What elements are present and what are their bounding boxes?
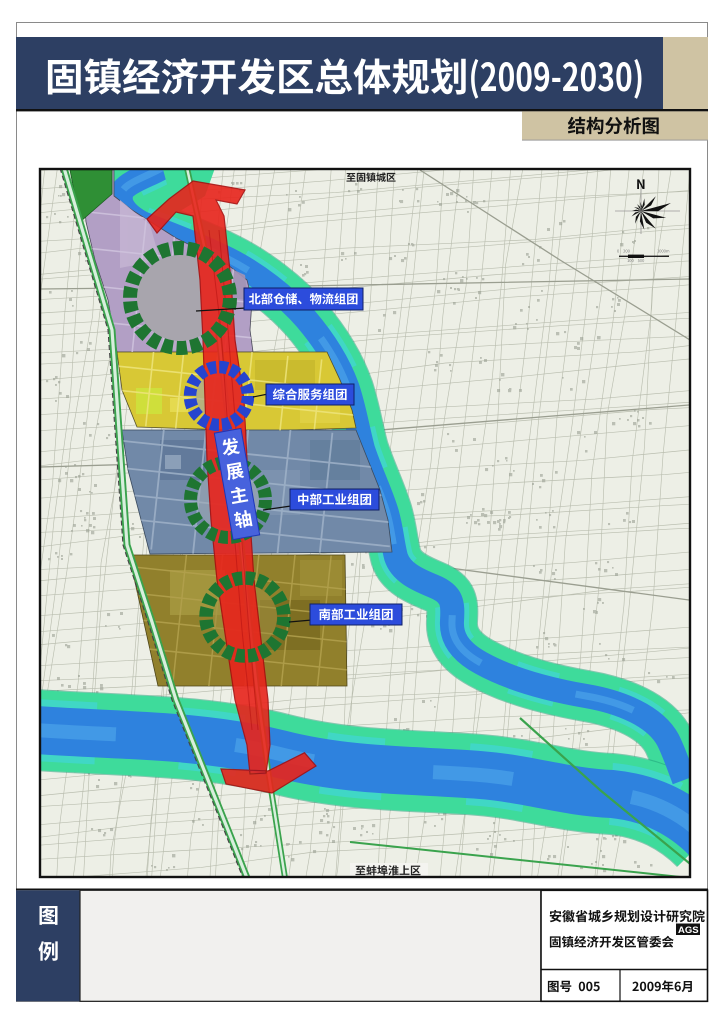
svg-text:AGS: AGS [678, 925, 699, 936]
